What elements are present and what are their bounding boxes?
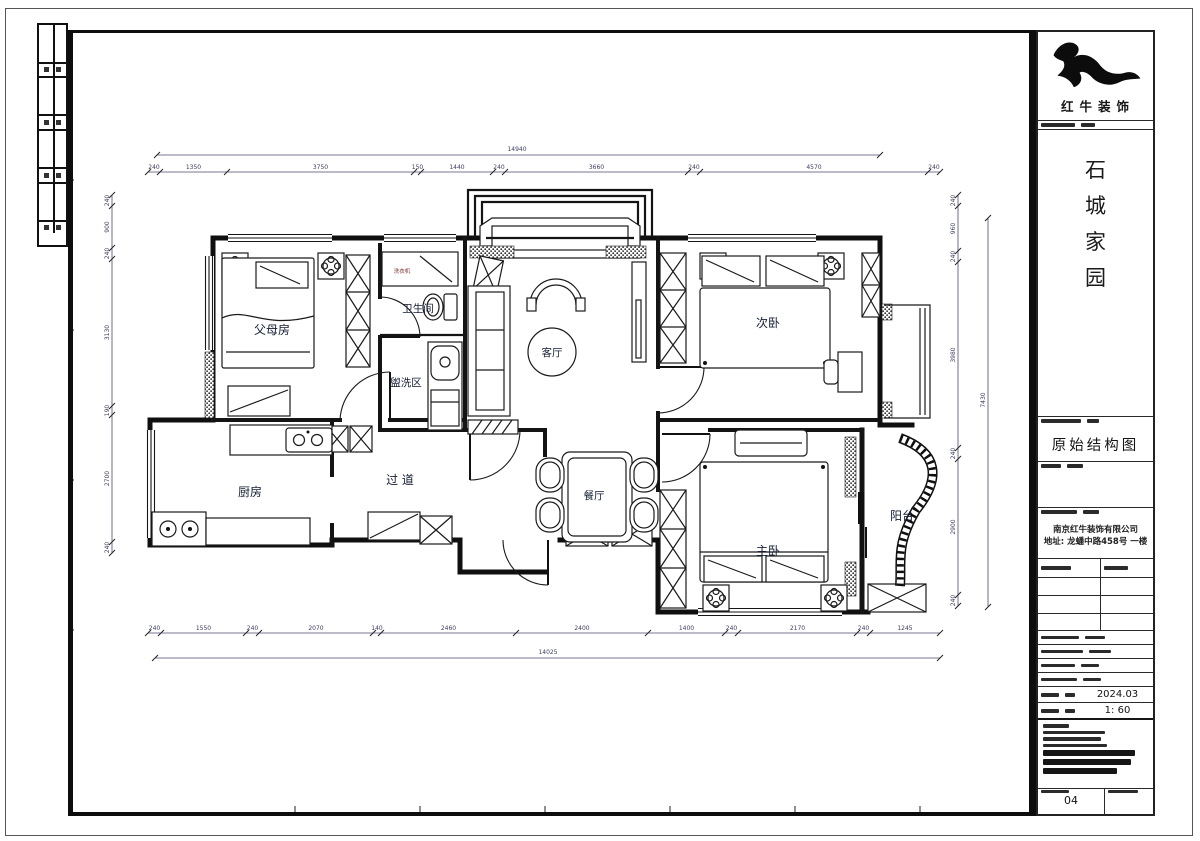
revision-strip (37, 23, 68, 247)
scale-value: 1: 60 (1086, 705, 1149, 716)
sink-cabinet (428, 342, 462, 430)
revision-cell (39, 167, 66, 182)
table-cell (1038, 613, 1100, 631)
dimension-label: 240 (104, 542, 111, 554)
shoe-cabinet (368, 512, 420, 540)
date-value: 2024.03 (1086, 689, 1149, 700)
field-row (1038, 644, 1153, 658)
window-bath-top (384, 233, 456, 243)
project-name-section: 石 城 家 园 (1038, 129, 1153, 416)
column-box (346, 255, 370, 367)
column-box (350, 426, 372, 452)
bed-master (700, 462, 828, 582)
room-label-wash: 盥洗区 (390, 377, 422, 389)
stove (152, 512, 206, 546)
window-second-top (688, 233, 816, 243)
illegible-label (1041, 636, 1079, 640)
tv-cabinet (632, 262, 646, 362)
dimension-label: 1400 (679, 625, 694, 632)
project-name-char: 园 (1038, 260, 1153, 296)
titleblock-row-header (1038, 507, 1153, 516)
door-parents (340, 372, 390, 420)
bed-parents (222, 258, 314, 368)
revision-cell (39, 129, 66, 167)
dimension-label: 240 (148, 164, 160, 171)
notes-section (1038, 718, 1153, 788)
field-row (1038, 630, 1153, 644)
illegible-label (1041, 419, 1081, 423)
illegible-label (1065, 709, 1075, 713)
dresser-master (735, 430, 807, 456)
illegible-label (1041, 709, 1059, 713)
brand-name: 红牛装饰 (1038, 96, 1153, 115)
illegible-label (1108, 790, 1138, 793)
table-cell (1100, 595, 1153, 613)
revision-cell (39, 114, 66, 129)
revision-cell (39, 62, 66, 76)
illegible-label (1089, 650, 1111, 654)
empty-section (1038, 470, 1153, 507)
illegible-label (1041, 566, 1071, 570)
dimension-label: 240 (950, 448, 957, 460)
room-label-dining: 餐厅 (584, 489, 605, 502)
illegible-note (1043, 768, 1117, 774)
project-name-char: 家 (1038, 224, 1153, 260)
dimension-label: 960 (950, 223, 957, 235)
illegible-label (1087, 419, 1099, 423)
room-label-kitchen: 厨房 (238, 484, 262, 499)
rosette-icon (821, 585, 847, 611)
dimension-label: 240 (149, 625, 161, 632)
sheet-number-right-cell (1104, 789, 1153, 815)
dimension-label: 1245 (897, 625, 912, 632)
door-living (470, 430, 520, 480)
dimension-label: 2460 (441, 625, 456, 632)
dimension-label: 2070 (308, 625, 323, 632)
field-row (1038, 658, 1153, 672)
dimension-label: 1440 (449, 164, 464, 171)
sofa (468, 286, 518, 434)
dimension-label: 14025 (538, 649, 557, 656)
dimension-label: 7430 (980, 392, 987, 407)
kitchen-counter-bottom (206, 518, 310, 545)
bay-window-right (884, 305, 930, 418)
table-cell (1100, 559, 1153, 577)
sheet-number-cell: 04 (1038, 789, 1104, 815)
revision-cell (39, 25, 66, 62)
floor-plan-canvas: 14940 14025 7430 24013503750150144024036… (0, 0, 1200, 841)
illegible-label (1041, 693, 1059, 697)
table-cell (1038, 577, 1100, 595)
door-entry (503, 540, 548, 585)
dimension-label: 240 (104, 195, 111, 207)
dimension-label: 2170 (790, 625, 805, 632)
dimension-label: 3750 (313, 164, 328, 171)
room-label-bath: 卫生间 (402, 302, 434, 315)
room-label-balcony: 阳台 (890, 508, 914, 523)
desk-parents (228, 386, 290, 416)
washer-label: 洗衣机 (394, 267, 411, 275)
titleblock-row-header (1038, 416, 1153, 425)
field-row (1038, 672, 1153, 686)
illegible-label (1041, 464, 1061, 468)
illegible-note (1043, 750, 1135, 756)
illegible-label (1065, 693, 1075, 697)
titleblock-subheader (1038, 120, 1153, 129)
column-box (868, 584, 926, 612)
column-box (660, 253, 686, 363)
dimension-label: 240 (104, 248, 111, 260)
illegible-label (1067, 464, 1083, 468)
column-box (660, 490, 686, 608)
illegible-label (1041, 664, 1075, 668)
rosette-icon (703, 585, 729, 611)
dimension-label: 150 (412, 164, 424, 171)
dimension-label: 240 (493, 164, 505, 171)
window-parents-left (204, 256, 214, 350)
table-cell (1038, 595, 1100, 613)
dimension-label: 240 (928, 164, 940, 171)
dimension-label: 900 (104, 221, 111, 233)
drawing-title: 原始结构图 (1038, 425, 1153, 455)
illegible-label (1083, 678, 1101, 682)
table-cell (1100, 577, 1153, 595)
rosette-icon (318, 253, 344, 279)
signature-table (1038, 558, 1153, 630)
illegible-note (1043, 737, 1101, 741)
room-label-parents: 父母房 (254, 322, 290, 337)
dimension-label: 240 (688, 164, 700, 171)
project-name-char: 城 (1038, 188, 1153, 224)
revision-cell (39, 220, 66, 233)
room-label-master: 主卧 (756, 544, 780, 558)
titleblock-separator (1029, 30, 1036, 816)
revision-cell (39, 76, 66, 114)
logo-section (1038, 32, 1153, 96)
dimension-label: 240 (726, 625, 738, 632)
company-name: 南京红牛装饰有限公司 (1038, 524, 1153, 536)
dimension-label: 240 (950, 595, 957, 607)
dimension-label: 1550 (196, 625, 211, 632)
dimension-label: 1350 (186, 164, 201, 171)
company-section: 南京红牛装饰有限公司 地址: 龙蟠中路458号 一楼 (1038, 516, 1153, 558)
illegible-label (1041, 123, 1075, 127)
dimension-label: 2700 (104, 471, 111, 486)
room-label-second: 次卧 (756, 316, 780, 330)
illegible-note (1043, 759, 1131, 765)
illegible-label (1041, 790, 1069, 793)
brand-section: 红牛装饰 (1038, 96, 1153, 120)
titleblock-row-header (1038, 461, 1153, 470)
dimension-label: 240 (950, 251, 957, 263)
dimension-label: 240 (858, 625, 870, 632)
column-box (862, 253, 880, 317)
dimension-label: 2900 (950, 519, 957, 534)
room-label-corridor: 过 道 (386, 473, 414, 487)
table-cell (1038, 559, 1100, 577)
dimension-label: 140 (371, 625, 383, 632)
date-row: 2024.03 (1038, 686, 1153, 702)
project-name-char: 石 (1038, 152, 1153, 188)
dimension-label: 190 (104, 405, 111, 417)
sheet-number-section: 04 (1038, 788, 1153, 814)
illegible-label (1041, 510, 1077, 514)
dimension-label: 3980 (950, 347, 957, 362)
table-cell (1100, 613, 1153, 631)
frame-border-top (68, 30, 1036, 33)
dimension-label: 3130 (104, 325, 111, 340)
dimension-label: 3660 (589, 164, 604, 171)
illegible-note (1043, 744, 1107, 748)
dimension-label: 4570 (806, 164, 821, 171)
drawing-sheet: 14940 14025 7430 24013503750150144024036… (0, 0, 1200, 841)
drawing-title-section: 原始结构图 (1038, 425, 1153, 461)
frame-border-bottom (68, 812, 1036, 816)
revision-cell (39, 182, 66, 220)
frame-border-left (68, 30, 73, 816)
dimension-label: 240 (247, 625, 259, 632)
illegible-label (1081, 123, 1095, 127)
illegible-label (1041, 678, 1077, 682)
scale-row: 1: 60 (1038, 702, 1153, 718)
illegible-label (1041, 650, 1083, 654)
illegible-note (1043, 724, 1069, 728)
illegible-label (1081, 664, 1099, 668)
bed-second (700, 256, 830, 368)
illegible-label (1085, 636, 1105, 640)
kitchen-counter-top (230, 425, 332, 455)
illegible-label (1083, 510, 1099, 514)
title-block: 红牛装饰 石 城 家 园 原始结构图 (1036, 30, 1155, 816)
door-second (658, 367, 704, 413)
arch-symbol (527, 279, 585, 311)
dimension-label: 14940 (507, 146, 526, 153)
room-label-living: 客厅 (542, 346, 563, 359)
illegible-note (1043, 731, 1105, 735)
column-box (420, 516, 452, 544)
bull-logo-icon (1046, 36, 1146, 92)
company-address: 地址: 龙蟠中路458号 一楼 (1038, 536, 1153, 548)
sheet-number: 04 (1038, 794, 1104, 807)
window-parents-top (228, 233, 332, 243)
dimension-label: 2400 (574, 625, 589, 632)
illegible-label (1104, 566, 1128, 570)
dimension-label: 240 (950, 195, 957, 207)
